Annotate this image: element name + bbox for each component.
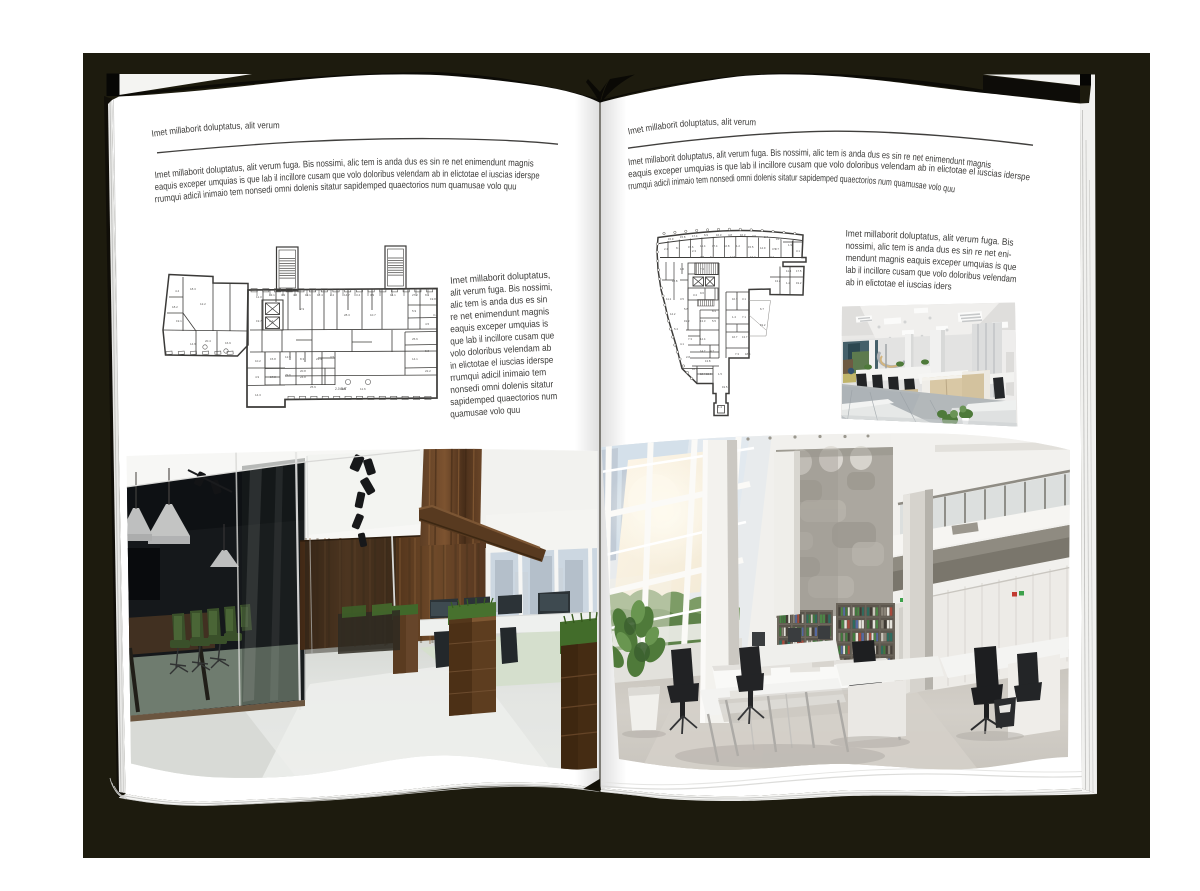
svg-text:14.1: 14.1: [412, 357, 418, 361]
svg-text:7.1: 7.1: [742, 315, 746, 319]
svg-text:15.5: 15.5: [748, 245, 754, 249]
svg-text:5.4: 5.4: [674, 327, 678, 331]
svg-text:16.3: 16.3: [692, 367, 698, 371]
svg-text:20.4: 20.4: [205, 339, 211, 343]
svg-text:13.1: 13.1: [269, 293, 275, 297]
svg-text:13.3: 13.3: [700, 319, 706, 323]
svg-text:6.9: 6.9: [704, 233, 708, 237]
svg-text:17.4: 17.4: [317, 293, 323, 297]
svg-text:5.8: 5.8: [425, 349, 430, 353]
svg-text:4.6: 4.6: [293, 293, 298, 297]
svg-text:19.8: 19.8: [430, 297, 436, 301]
svg-text:4.5: 4.5: [425, 322, 430, 326]
svg-text:13.2: 13.2: [775, 279, 781, 283]
svg-text:12.5: 12.5: [285, 355, 291, 359]
svg-text:14.4: 14.4: [700, 337, 706, 341]
svg-text:8.1: 8.1: [676, 246, 680, 250]
svg-text:27.2: 27.2: [412, 293, 418, 297]
svg-text:2.9: 2.9: [300, 307, 305, 311]
svg-text:23.4: 23.4: [316, 357, 322, 361]
svg-text:2.2: 2.2: [330, 293, 335, 297]
svg-text:10.2: 10.2: [255, 359, 261, 363]
svg-text:6.7: 6.7: [760, 307, 764, 311]
svg-text:3.9: 3.9: [752, 234, 756, 238]
svg-text:11.1: 11.1: [666, 297, 672, 301]
svg-text:14.2: 14.2: [670, 312, 676, 316]
svg-text:14.9: 14.9: [760, 246, 766, 250]
svg-text:15.4: 15.4: [700, 244, 706, 248]
svg-text:19.1: 19.1: [305, 293, 311, 297]
svg-text:22.2: 22.2: [425, 369, 431, 373]
svg-text:2.7: 2.7: [764, 235, 768, 239]
svg-text:7.3: 7.3: [735, 352, 739, 356]
svg-text:5.8: 5.8: [684, 307, 688, 311]
svg-text:3.9: 3.9: [281, 293, 286, 297]
svg-text:3.2: 3.2: [770, 255, 774, 259]
svg-text:11.5: 11.5: [730, 255, 736, 259]
svg-text:8.4: 8.4: [712, 309, 716, 313]
svg-text:10.7: 10.7: [732, 297, 738, 301]
svg-text:5.9: 5.9: [412, 309, 417, 313]
svg-text:15.9: 15.9: [668, 237, 674, 241]
svg-text:17.4: 17.4: [692, 234, 698, 238]
svg-text:19.5: 19.5: [722, 385, 728, 389]
svg-text:14.7: 14.7: [700, 349, 706, 353]
svg-text:18.4: 18.4: [700, 372, 706, 376]
svg-text:1.2: 1.2: [786, 281, 790, 285]
svg-text:14.1: 14.1: [390, 293, 396, 297]
svg-text:25.9: 25.9: [310, 385, 316, 389]
svg-text:15.8: 15.8: [270, 357, 276, 361]
svg-text:2-0 3MT: 2-0 3MT: [335, 387, 347, 391]
svg-text:17.4: 17.4: [712, 244, 718, 248]
svg-text:16.3: 16.3: [716, 233, 722, 237]
svg-text:11.6: 11.6: [360, 387, 366, 391]
svg-text:11.3: 11.3: [256, 295, 262, 299]
svg-text:2.3: 2.3: [692, 249, 696, 253]
svg-text:3.5: 3.5: [680, 297, 684, 301]
svg-text:3.9: 3.9: [370, 293, 375, 297]
svg-text:20.8: 20.8: [300, 369, 306, 373]
svg-text:4.4: 4.4: [175, 289, 180, 293]
svg-text:15.3: 15.3: [776, 237, 782, 241]
svg-text:14.7: 14.7: [344, 293, 350, 297]
svg-text:9.6: 9.6: [700, 291, 704, 295]
svg-text:14.3: 14.3: [255, 393, 261, 397]
svg-text:29.6: 29.6: [285, 373, 291, 377]
svg-text:3.2: 3.2: [433, 313, 438, 317]
svg-text:3.4: 3.4: [693, 293, 697, 297]
svg-text:1.4: 1.4: [718, 405, 722, 409]
svg-text:10.3: 10.3: [740, 233, 746, 237]
svg-text:25.6: 25.6: [412, 337, 418, 341]
svg-text:11.4: 11.4: [786, 269, 792, 273]
svg-text:2.8: 2.8: [686, 355, 690, 359]
svg-text:15.9: 15.9: [706, 372, 712, 376]
svg-text:14.6: 14.6: [190, 342, 196, 346]
svg-text:1.2: 1.2: [736, 244, 740, 248]
svg-text:17.5: 17.5: [796, 269, 802, 273]
svg-text:2.4: 2.4: [664, 247, 668, 251]
svg-text:3.7: 3.7: [775, 247, 779, 251]
svg-text:1.5: 1.5: [718, 372, 722, 376]
svg-text:15.8: 15.8: [680, 235, 686, 239]
svg-text:13.7: 13.7: [742, 335, 748, 339]
svg-text:18.3: 18.3: [190, 287, 196, 291]
svg-text:19.2: 19.2: [796, 281, 802, 285]
svg-text:19.2: 19.2: [760, 323, 766, 327]
svg-text:28.3: 28.3: [344, 313, 350, 317]
svg-text:1.4: 1.4: [732, 315, 736, 319]
svg-text:3.5: 3.5: [330, 355, 335, 359]
svg-text:16.9: 16.9: [225, 341, 231, 345]
svg-text:16.7: 16.7: [732, 335, 738, 339]
svg-text:18.4: 18.4: [745, 352, 751, 356]
svg-text:12.8: 12.8: [672, 279, 678, 283]
svg-text:5.5: 5.5: [712, 319, 716, 323]
svg-text:10.7: 10.7: [370, 313, 376, 317]
svg-text:9.1: 9.1: [710, 255, 714, 259]
svg-text:7.4: 7.4: [700, 267, 704, 271]
svg-text:19.3: 19.3: [684, 319, 690, 323]
svg-text:2.4: 2.4: [269, 319, 274, 323]
svg-text:19.1: 19.1: [176, 319, 182, 323]
svg-text:8.1: 8.1: [425, 293, 430, 297]
svg-text:8.3: 8.3: [300, 357, 305, 361]
svg-text:4.9: 4.9: [255, 375, 260, 379]
svg-text:7.8: 7.8: [700, 255, 704, 259]
svg-text:4.1: 4.1: [680, 342, 684, 346]
svg-text:12.2: 12.2: [200, 302, 206, 306]
svg-text:10.8: 10.8: [724, 244, 730, 248]
svg-text:17.8: 17.8: [270, 375, 276, 379]
svg-text:3.1: 3.1: [742, 297, 746, 301]
svg-text:13.2: 13.2: [750, 255, 756, 259]
svg-text:13.8: 13.8: [705, 359, 711, 363]
svg-text:4.7: 4.7: [710, 349, 714, 353]
svg-text:4.8: 4.8: [728, 233, 732, 237]
svg-text:3.4: 3.4: [356, 293, 361, 297]
svg-text:7.3: 7.3: [688, 337, 692, 341]
svg-text:3.1: 3.1: [796, 249, 800, 253]
svg-text:19.7: 19.7: [256, 319, 262, 323]
svg-text:1.9: 1.9: [788, 243, 792, 247]
svg-text:18.2: 18.2: [172, 305, 178, 309]
svg-text:24.8: 24.8: [300, 375, 306, 379]
svg-text:1.6: 1.6: [680, 267, 684, 271]
